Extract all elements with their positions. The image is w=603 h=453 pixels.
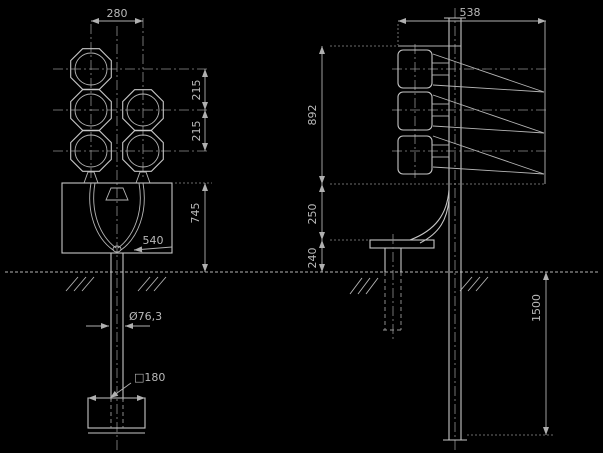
- ground-hatch-right-2: [460, 277, 488, 291]
- visor-wedge-1: [433, 54, 544, 92]
- dim-label-540: 540: [143, 234, 164, 247]
- dim-label-745: 745: [189, 203, 202, 224]
- visor-wedge-3: [433, 136, 544, 174]
- technical-drawing-canvas: 280 215 215 745 540 Ø76,3 □1: [0, 0, 603, 453]
- dim-label-diameter: Ø76,3: [129, 310, 162, 323]
- dim-label-215-upper: 215: [190, 80, 203, 101]
- signal-pole-drawing: 280 215 215 745 540 Ø76,3 □1: [0, 0, 603, 453]
- ground-hatch-left-2: [138, 277, 166, 291]
- dim-base-plate: □180: [110, 371, 165, 398]
- bracket-arm: [410, 190, 449, 243]
- dim-signal-height: 892: [306, 46, 546, 184]
- visor-wedge-2: [433, 95, 544, 133]
- dim-pedestal-height: 240: [306, 240, 322, 272]
- pedestal: [370, 234, 434, 340]
- dim-top-width-side: 538: [398, 6, 546, 45]
- front-view: 280 215 215 745 540 Ø76,3 □1: [53, 7, 212, 450]
- ground-line: [5, 272, 598, 294]
- base-block: [88, 398, 145, 433]
- ground-hatch-left-1: [66, 277, 94, 291]
- dim-label-215-lower: 215: [190, 121, 203, 142]
- side-view: 538 892 250 240 1500: [306, 6, 554, 450]
- dim-foundation-depth: 1500: [467, 272, 554, 435]
- lamp-mount-right: [136, 172, 150, 183]
- dim-cable-loop: 540: [134, 234, 172, 250]
- dim-label-240: 240: [306, 248, 319, 269]
- dim-label-250: 250: [306, 204, 319, 225]
- dim-label-1500: 1500: [530, 294, 543, 322]
- dim-label-280: 280: [107, 7, 128, 20]
- dim-label-base: □180: [134, 371, 165, 384]
- dim-bracket-drop: 250: [306, 184, 370, 240]
- ground-hatch-right-1: [350, 278, 378, 294]
- dim-top-width-front: 280: [91, 7, 143, 21]
- dim-label-538: 538: [460, 6, 481, 19]
- dim-label-892: 892: [306, 105, 319, 126]
- dim-pole-diameter: Ø76,3: [86, 310, 162, 326]
- dim-box-height: 745: [175, 183, 212, 272]
